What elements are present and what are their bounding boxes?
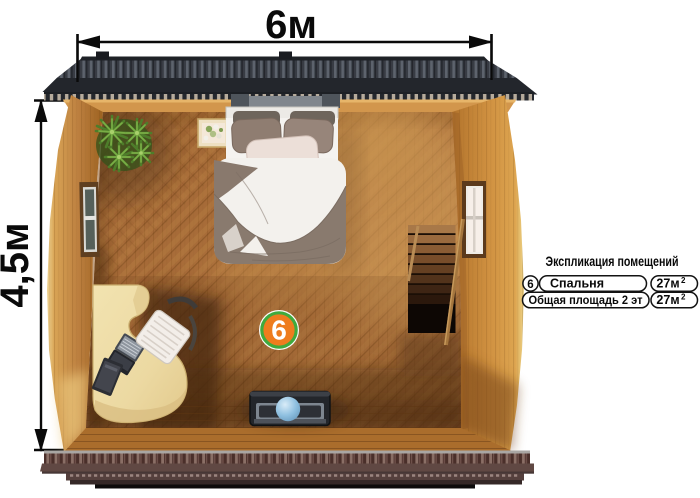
svg-text:4,5м: 4,5м bbox=[0, 222, 37, 307]
svg-text:Экспликация помещений: Экспликация помещений bbox=[546, 254, 679, 269]
svg-text:27м: 27м bbox=[656, 293, 679, 307]
svg-text:2: 2 bbox=[681, 293, 686, 302]
svg-text:6: 6 bbox=[527, 279, 533, 291]
svg-text:6: 6 bbox=[271, 315, 287, 346]
svg-text:Общая площадь 2 эт: Общая площадь 2 эт bbox=[529, 293, 643, 307]
svg-text:Спальня: Спальня bbox=[550, 277, 604, 291]
svg-text:27м: 27м bbox=[656, 277, 679, 291]
svg-text:6м: 6м bbox=[265, 3, 317, 47]
svg-text:2: 2 bbox=[681, 276, 686, 285]
